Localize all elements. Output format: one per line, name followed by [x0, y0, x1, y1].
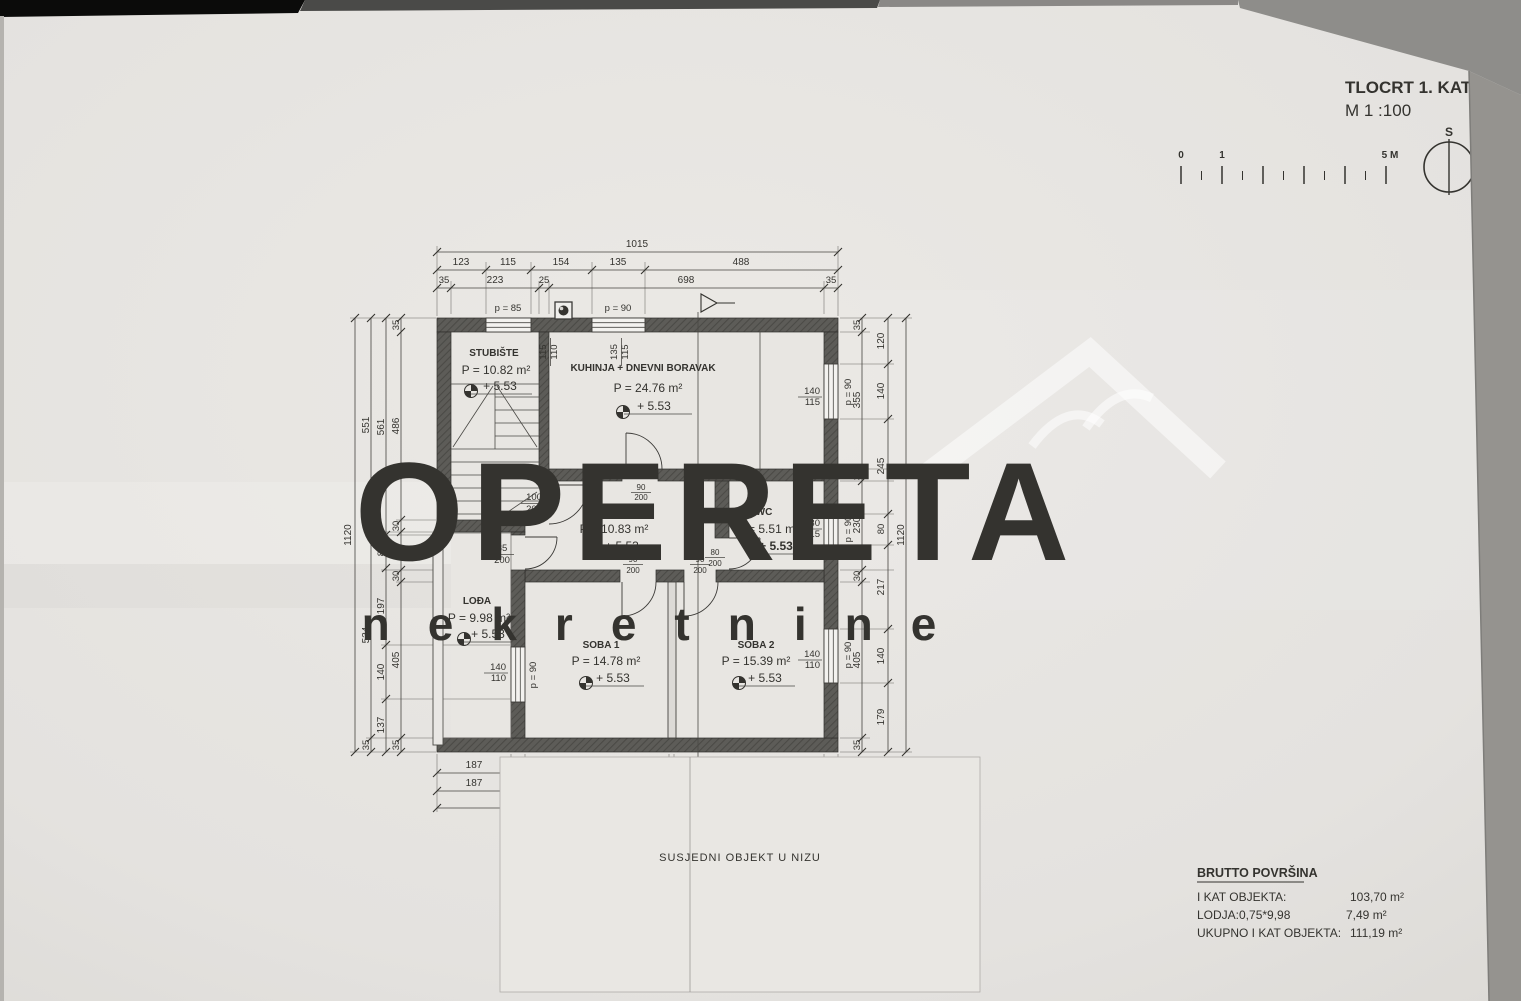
dim-label: 486 — [391, 417, 402, 434]
dim-label: 25 — [539, 275, 550, 286]
window-size-label: 115 — [805, 397, 820, 408]
window-loda-soba1 — [511, 647, 525, 702]
dim-label: 35 — [826, 275, 837, 286]
summary-row-label: LODJA:0,75*9,98 — [1197, 908, 1291, 922]
room-name: KUHINJA + DNEVNI BORAVAK — [570, 363, 716, 374]
room-elevation: + 5.53 — [748, 671, 782, 685]
room-name: STUBIŠTE — [469, 346, 519, 359]
parapet-label: p = 90 — [843, 379, 854, 406]
summary-row-value: 103,70 m² — [1350, 890, 1404, 904]
dim-label: 120 — [876, 332, 887, 349]
scale-five-label: 5 M — [1382, 150, 1399, 161]
summary-row-value: 7,49 m² — [1346, 908, 1387, 922]
room-elevation: + 5.53 — [596, 671, 630, 685]
neighbor-building: SUSJEDNI OBJEKT U NIZU — [500, 757, 980, 992]
dim-label: 35 — [852, 740, 863, 751]
room-elevation: + 5.53 — [483, 379, 517, 393]
dim-label: 187 — [466, 778, 483, 789]
elevation-marker — [617, 406, 630, 419]
dim-label: 137 — [376, 716, 387, 733]
elevation-marker — [465, 385, 478, 398]
dim-label: 179 — [876, 708, 887, 725]
window-size-label: 140 — [490, 662, 506, 673]
parapet-label: p = 90 — [528, 662, 539, 689]
window-size-label: 110 — [491, 673, 506, 684]
dim-label: 35 — [439, 275, 450, 286]
window-size-label: 140 — [804, 649, 820, 660]
drawing-title: TLOCRT 1. KATA — [1345, 78, 1482, 97]
dim-label: 123 — [453, 257, 470, 268]
parapet-label: p = 90 — [605, 303, 632, 314]
watermark-brand: OPERETA — [355, 433, 1077, 590]
dim-label: 35 — [391, 740, 402, 751]
dim-label: 1120 — [343, 524, 354, 546]
window-size-label: 115 — [538, 344, 549, 359]
room-elevation: + 5.53 — [637, 399, 671, 413]
scanned-floor-plan-page: TLOCRT 1. KATA M 1 :100 0 1 5 M S — [0, 0, 1521, 1001]
dim-label: 551 — [361, 416, 372, 433]
dim-label: 115 — [500, 257, 516, 268]
dim-label: 140 — [376, 663, 387, 680]
parapet-label: p = 85 — [495, 303, 522, 314]
dim-label: 35 — [391, 320, 402, 331]
floor-plan-drawing: TLOCRT 1. KATA M 1 :100 0 1 5 M S — [0, 0, 1521, 1001]
scale-zero-label: 0 — [1178, 150, 1184, 161]
window-size-label: 135 — [609, 344, 620, 360]
dim-label: 140 — [876, 382, 887, 399]
dim-label: 1015 — [626, 239, 649, 250]
window-kuhinja-top — [592, 318, 645, 332]
dim-label: 223 — [487, 275, 504, 286]
compass-letter: S — [1445, 125, 1453, 139]
chimney-symbol — [555, 302, 572, 319]
summary-row-label: UKUPNO I KAT OBJEKTA: — [1197, 926, 1341, 940]
dim-label: 488 — [733, 257, 750, 268]
summary-title: BRUTTO POVRŠINA — [1197, 865, 1318, 880]
window-size-label: 110 — [805, 660, 820, 671]
dim-label: 135 — [610, 257, 627, 268]
window-kuhinja-right — [824, 364, 838, 419]
summary-row-label: I KAT OBJEKTA: — [1197, 890, 1286, 904]
summary-row-value: 111,19 m² — [1350, 926, 1402, 940]
elevation-marker — [580, 677, 593, 690]
room-area: P = 24.76 m² — [614, 381, 683, 395]
dim-label: 698 — [678, 275, 695, 286]
room-area: P = 15.39 m² — [722, 654, 791, 668]
drawing-scale: M 1 :100 — [1345, 101, 1411, 120]
dim-label: 187 — [466, 760, 483, 771]
elevation-marker — [733, 677, 746, 690]
dim-label: 35 — [852, 320, 863, 331]
room-area: P = 14.78 m² — [572, 654, 641, 668]
dim-label: 154 — [553, 257, 570, 268]
scale-one-label: 1 — [1219, 150, 1225, 161]
neighbor-label: SUSJEDNI OBJEKT U NIZU — [659, 852, 821, 864]
watermark-subtitle: nekretnine — [362, 598, 975, 650]
room-area: P = 10.82 m² — [462, 363, 531, 377]
dim-label: 405 — [391, 651, 402, 668]
window-stubiste — [486, 318, 531, 332]
window-size-label: 140 — [804, 386, 820, 397]
dim-label: 35 — [361, 740, 372, 751]
